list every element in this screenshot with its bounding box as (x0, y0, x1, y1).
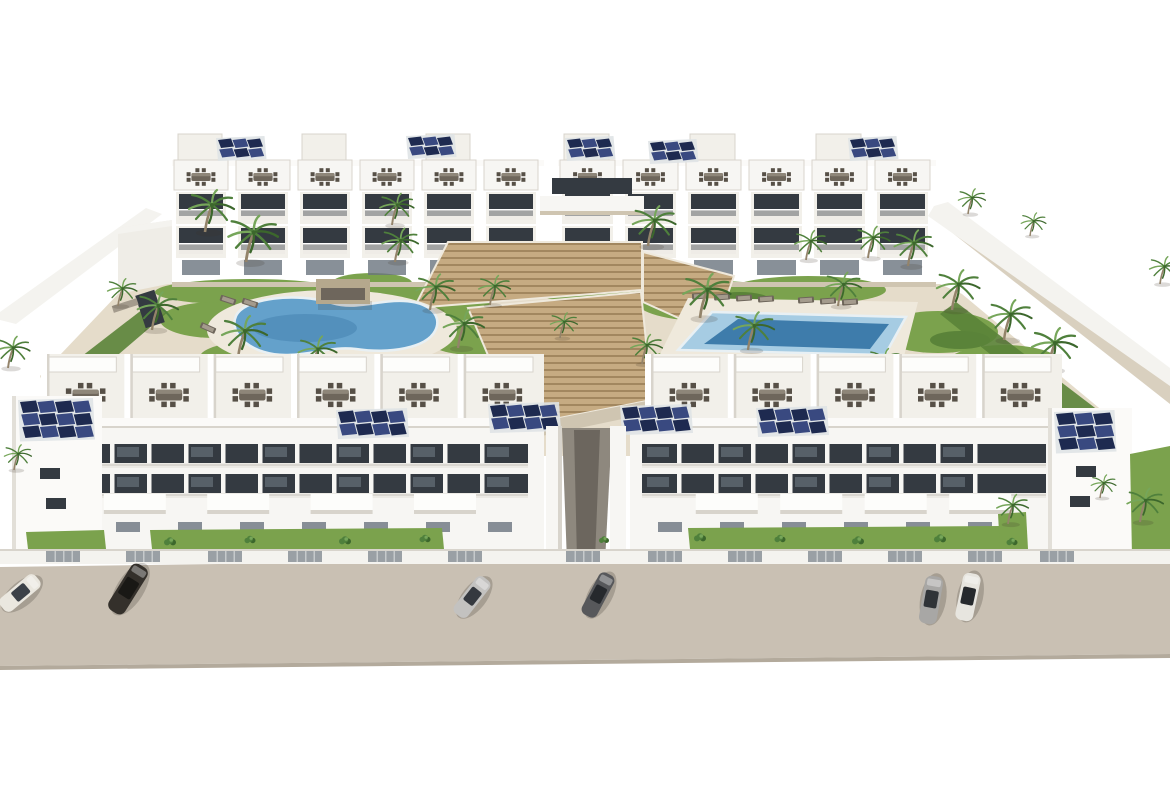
sun-lounger (820, 297, 836, 304)
balcony-mullion (862, 444, 867, 463)
solar-panel (672, 407, 690, 420)
ground-floor-window (182, 260, 220, 275)
awning (780, 494, 842, 512)
solar-panel (73, 401, 92, 414)
balcony-mullion (258, 474, 263, 493)
terrace-divider-wall (208, 354, 214, 418)
solar-panel (508, 417, 526, 430)
building-module (298, 134, 352, 275)
solar-panel (640, 419, 658, 432)
balcony-mullion (751, 444, 756, 463)
terrace-pergola (466, 357, 533, 372)
front-apartment-block (12, 354, 561, 558)
architectural-render (0, 0, 1170, 785)
fence-slat-panel (808, 551, 842, 562)
sun-lounger (758, 295, 774, 302)
solar-panel (524, 417, 542, 430)
terrace-pergola (819, 357, 886, 372)
solar-panel (622, 407, 640, 420)
balcony-mullion (295, 444, 300, 463)
solar-panel (808, 409, 826, 422)
fence-slat-panel (648, 551, 682, 562)
solar-panel (775, 409, 793, 422)
balcony-mullion (899, 474, 904, 493)
solar-panel (1093, 413, 1113, 426)
balcony-railing (817, 209, 862, 220)
fence-slat-panel (288, 551, 322, 562)
terrace-pergola (984, 357, 1051, 372)
terrace-divider-wall (124, 354, 130, 418)
terrace-divider-wall (893, 354, 899, 418)
solar-panel-array (406, 134, 457, 159)
kidney-pool-deep-area (253, 314, 357, 342)
facade-balcony-band (642, 444, 1046, 468)
balcony-mullion (936, 474, 941, 493)
fence-slat-panel (126, 551, 160, 562)
fence-slat-panel (888, 551, 922, 562)
terrace-pergola (736, 357, 803, 372)
corner-tower (1048, 408, 1132, 556)
balcony-mullion (147, 444, 152, 463)
fence-slat-panel (1040, 551, 1074, 562)
solar-panel (356, 423, 374, 436)
terrace-pergola (49, 357, 116, 372)
solar-panel (56, 413, 75, 426)
solar-panel (339, 423, 357, 436)
solar-panel (759, 421, 777, 434)
terrace-pergola (653, 357, 720, 372)
balcony-glass (721, 447, 743, 457)
building-module (360, 160, 414, 275)
roof-parapet (26, 418, 544, 427)
awning (104, 494, 166, 512)
balcony-railing (754, 209, 799, 220)
balcony-railing (489, 209, 533, 220)
solar-panel (1058, 438, 1078, 451)
ground-floor-window (658, 522, 682, 532)
solar-panel (55, 401, 74, 414)
solar-panel (809, 421, 827, 434)
balcony-railing (303, 209, 347, 220)
solar-panel (792, 421, 810, 434)
building-module (236, 160, 290, 275)
facade-balcony-band (38, 444, 528, 468)
balcony-mullion (332, 474, 337, 493)
fence-slat-panel (566, 551, 600, 562)
ground-floor-window (757, 260, 796, 275)
balcony-railing (427, 209, 471, 220)
balcony-mullion (221, 474, 226, 493)
balcony-glass (339, 477, 361, 487)
terrace-pergola (901, 357, 968, 372)
tower-window (46, 498, 66, 509)
solar-panel (523, 405, 541, 418)
balcony-glass (721, 477, 743, 487)
balcony-mullion (406, 474, 411, 493)
balcony-mullion (825, 444, 830, 463)
fence-slat-panel (368, 551, 402, 562)
balcony-railing (303, 243, 347, 254)
street-fence (0, 549, 1170, 564)
balcony-glass (943, 477, 965, 487)
solar-panel (758, 409, 776, 422)
solar-panel (490, 405, 508, 418)
balcony-mullion (110, 474, 115, 493)
solar-panel-array (848, 136, 899, 161)
balcony-mullion (825, 474, 830, 493)
balcony-railing (691, 209, 736, 220)
balcony-mullion (788, 444, 793, 463)
balcony-mullion (480, 474, 485, 493)
solar-panel (372, 423, 390, 436)
balcony-railing (179, 243, 223, 254)
balcony-mullion (677, 444, 682, 463)
balcony-mullion (443, 444, 448, 463)
solar-panel-array (565, 136, 616, 161)
balcony-mullion (714, 444, 719, 463)
tower-window (1076, 466, 1096, 477)
awning (207, 494, 269, 512)
balcony-glass (117, 447, 139, 457)
balcony-mullion (862, 474, 867, 493)
solar-panel (1056, 413, 1076, 426)
balcony-mullion (973, 444, 978, 463)
solar-panel (338, 411, 356, 424)
solar-panel (655, 407, 673, 420)
fence-slat-panel (46, 551, 80, 562)
ground-floor-window (306, 260, 344, 275)
terrace-divider-wall (728, 354, 734, 418)
solar-panel (22, 426, 41, 439)
terrace-divider-wall (291, 354, 297, 418)
solar-panel (507, 405, 525, 418)
balcony-glass (869, 447, 891, 457)
building-module (875, 160, 930, 275)
balcony-railing (754, 243, 799, 254)
awning (311, 494, 373, 512)
solar-panel (673, 419, 691, 432)
solar-panel (1077, 438, 1097, 451)
solar-panel (776, 421, 794, 434)
balcony-mullion (369, 474, 374, 493)
ground-floor-window (116, 522, 140, 532)
balcony-mullion (751, 474, 756, 493)
balcony-glass (265, 477, 287, 487)
terrace-divider-wall (374, 354, 380, 418)
balcony-glass (413, 477, 435, 487)
pergola-canopy (321, 288, 365, 300)
solar-panel (1075, 413, 1095, 426)
solar-panel (791, 409, 809, 422)
terrace-pergola (216, 357, 283, 372)
balcony-railing (241, 209, 285, 220)
balcony-railing (691, 243, 736, 254)
fence-slat-panel (728, 551, 762, 562)
balcony-glass (265, 447, 287, 457)
solar-panel (656, 419, 674, 432)
solar-panel (38, 401, 57, 414)
sun-lounger (798, 296, 814, 303)
solar-panel-array (18, 398, 95, 442)
solar-panel (1076, 425, 1096, 438)
solar-panel (40, 426, 59, 439)
balcony-glass (413, 447, 435, 457)
solar-panel (388, 411, 406, 424)
sun-lounger (736, 294, 752, 301)
tower-window (1070, 496, 1090, 507)
penthouse (302, 134, 346, 162)
front-apartment-block (620, 354, 1132, 556)
balcony-mullion (714, 474, 719, 493)
balcony-mullion (406, 444, 411, 463)
solar-panel (540, 405, 558, 418)
terrace-pergola (299, 357, 366, 372)
solar-panel (1094, 425, 1114, 438)
solar-panel-array (756, 406, 829, 437)
awning (865, 494, 927, 512)
terrace-divider-wall (976, 354, 982, 418)
balcony-glass (795, 447, 817, 457)
balcony-glass (117, 477, 139, 487)
balcony-mullion (936, 444, 941, 463)
solar-panel-array (620, 404, 693, 435)
solar-panel (1095, 438, 1115, 451)
awning (696, 494, 758, 512)
balcony-mullion (443, 474, 448, 493)
building-module (749, 160, 804, 275)
balcony-railing (880, 209, 925, 220)
balcony-mullion (480, 444, 485, 463)
balcony-glass (339, 447, 361, 457)
ground-floor-window (488, 522, 512, 532)
balcony-mullion (147, 474, 152, 493)
terrace-pergola (382, 357, 449, 372)
balcony-railing (817, 243, 862, 254)
ground-floor-window (820, 260, 859, 275)
balcony-glass (191, 477, 213, 487)
solar-panel (75, 426, 94, 439)
penthouse (178, 134, 222, 162)
solar-panel (491, 417, 509, 430)
balcony-mullion (973, 474, 978, 493)
balcony-glass (795, 477, 817, 487)
awning (949, 494, 1011, 512)
fence-slat-panel (448, 551, 482, 562)
balcony-glass (943, 447, 965, 457)
roof-parapet (630, 418, 1062, 427)
balcony-glass (647, 447, 669, 457)
solar-panel-array (336, 408, 409, 439)
solar-panel (20, 401, 39, 414)
balcony-glass (869, 477, 891, 487)
solar-panel-array (216, 136, 267, 161)
solar-panel (389, 423, 407, 436)
balcony-glass (487, 447, 509, 457)
balcony-mullion (221, 444, 226, 463)
solar-panel (639, 407, 657, 420)
balcony-railing (365, 243, 409, 254)
balcony-glass (487, 477, 509, 487)
balcony-mullion (369, 444, 374, 463)
awning (414, 494, 476, 512)
fence-slat-panel (968, 551, 1002, 562)
balcony-mullion (110, 444, 115, 463)
solar-panel-array (648, 139, 699, 164)
balcony-mullion (184, 444, 189, 463)
solar-panel (39, 413, 58, 426)
solar-panel (74, 413, 93, 426)
balcony-glass (191, 447, 213, 457)
balcony-mullion (788, 474, 793, 493)
solar-panel (57, 426, 76, 439)
balcony-mullion (332, 444, 337, 463)
central-passage (546, 426, 626, 562)
balcony-mullion (258, 444, 263, 463)
balcony-glass (647, 477, 669, 487)
solar-panel (21, 413, 40, 426)
balcony-mullion (295, 474, 300, 493)
solar-panel (355, 411, 373, 424)
solar-panel (1057, 425, 1077, 438)
terrace-pergola (132, 357, 199, 372)
fence-slat-panel (208, 551, 242, 562)
terrace-divider-wall (458, 354, 464, 418)
central-bridge (540, 178, 644, 215)
balcony-mullion (677, 474, 682, 493)
balcony-mullion (184, 474, 189, 493)
tower-window (40, 468, 60, 479)
solar-panel-array (1054, 410, 1117, 454)
solar-panel (371, 411, 389, 424)
balcony-mullion (899, 444, 904, 463)
